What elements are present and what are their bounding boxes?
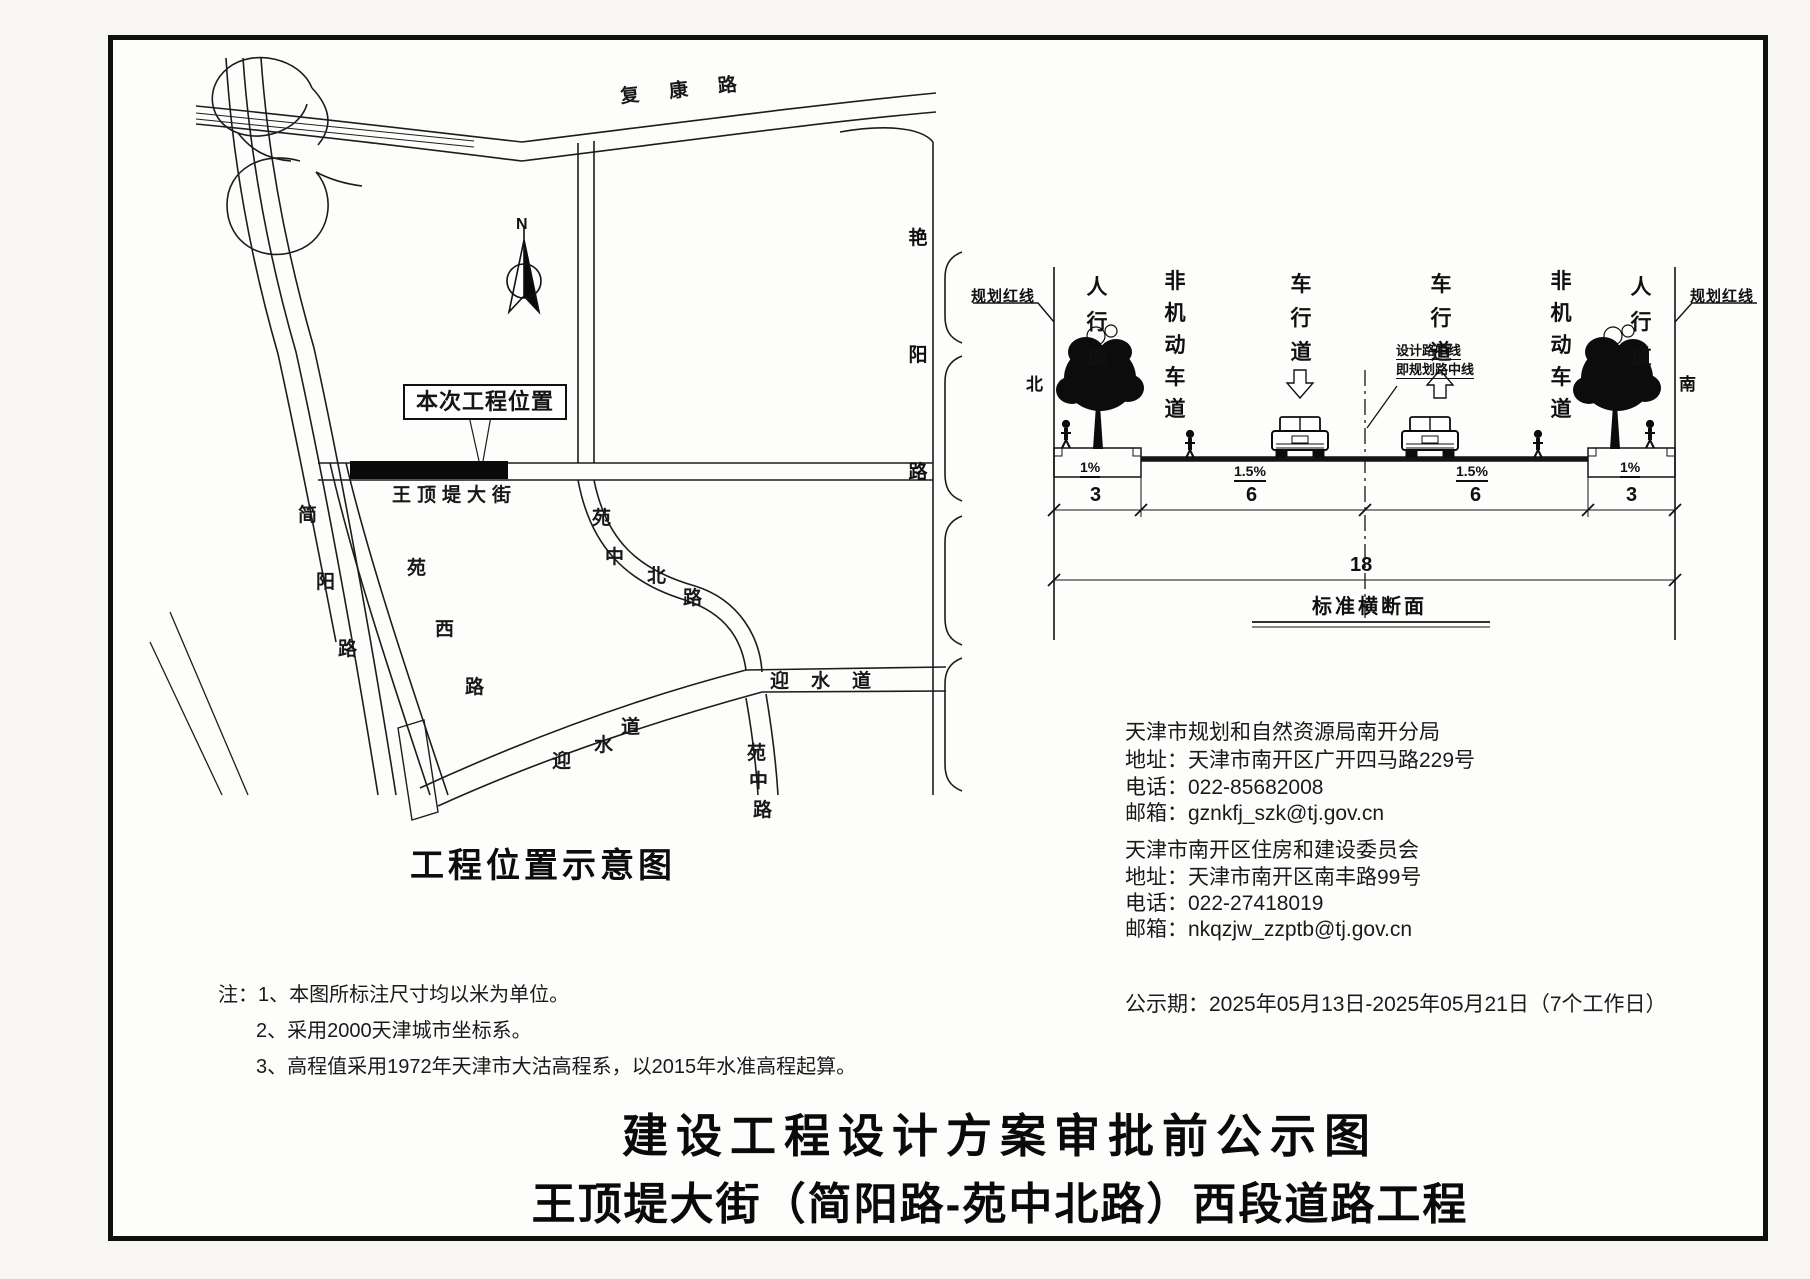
cross-section-title: 标准横断面 [1312,590,1427,619]
centerline-label-line1: 设计路中线 [1396,343,1461,360]
road-label-yuanxi: 苑 [407,559,426,578]
road-label-jianyang: 阳 [316,573,335,592]
note-3: 3、高程值采用1972年天津市大沽高程系，以2015年水准高程起算。 [256,1050,856,1079]
road-label-jianyang: 简 [298,506,317,525]
road-label-yingshui: 道 [621,718,640,737]
org1-address: 地址：天津市南开区广开四马路229号 [1125,744,1475,774]
note-2: 2、采用2000天津城市坐标系。 [256,1014,532,1043]
road-label-yingshui-east: 迎水道 [770,672,893,691]
lane-label-nonmotor-left: 非机动车道 [1162,266,1188,426]
lane-label-nonmotor-right: 非机动车道 [1548,266,1574,426]
project-location-label: 本次工程位置 [403,384,567,420]
pedestrian-icon [1533,430,1543,458]
direction-north: 北 [1026,370,1043,395]
red-line-label-left: 规划红线 [971,285,1035,306]
road-label-wangdingdi: 王顶堤大街 [392,486,517,505]
slope-left-lane: 1.5% [1234,463,1266,482]
pedestrian-icon [1061,420,1071,448]
location-map [150,58,962,820]
dim-left-lane: 6 [1246,484,1257,507]
pedestrian-icon [1645,420,1655,448]
road-label-yingshui: 迎 [552,752,571,771]
road-label-yuanzhong: 路 [753,801,772,820]
road-label-yuanzhong: 中 [749,772,768,791]
road-label-yanyang: 艳阳路 [905,180,931,531]
public-notice-sheet: { "map": { "north_mark": "N", "project_l… [0,0,1810,1279]
lane-label-sidewalk-left: 人行道 [1084,270,1110,375]
slope-left-sidewalk: 1% [1080,459,1100,478]
slope-right-sidewalk: 1% [1620,459,1640,478]
car-icon [1402,417,1458,457]
road-label-yuanzhong: 苑 [747,744,766,763]
lane-label-vehicle-left: 车行道 [1288,268,1314,370]
road-label-yuanzhongbei: 苑 [592,509,611,528]
main-title-line1: 建设工程设计方案审批前公示图 [230,1100,1770,1166]
road-label-yuanzhongbei: 路 [683,589,702,608]
org1-email: 邮箱：gznkfj_szk@tj.gov.cn [1125,797,1384,827]
road-label-yuanxi: 西 [435,620,454,639]
org1-name: 天津市规划和自然资源局南开分局 [1125,716,1440,746]
dim-right-sidewalk: 3 [1626,484,1637,507]
map-title: 工程位置示意图 [408,838,678,887]
centerline-label-line2: 即规划路中线 [1396,362,1474,379]
dim-left-sidewalk: 3 [1090,484,1101,507]
road-label-jianyang: 路 [338,640,357,659]
down-arrow-icon [1287,370,1313,398]
notice-period: 公示期：2025年05月13日-2025年05月21日（7个工作日） [1125,988,1667,1018]
north-arrow-icon [507,228,541,312]
car-icon [1272,417,1328,457]
project-location-bar [350,461,508,479]
lane-label-sidewalk-right: 人行道 [1628,270,1654,375]
road-label-yuanxi: 路 [465,678,484,697]
slope-right-lane: 1.5% [1456,463,1488,482]
org2-name: 天津市南开区住房和建设委员会 [1125,834,1419,864]
road-label-yuanzhongbei: 中 [605,548,624,567]
road-label-yuanzhongbei: 北 [647,567,666,586]
road-label-yingshui: 水 [594,736,613,755]
direction-south: 南 [1679,370,1696,395]
north-arrow-label: N [516,216,528,234]
org2-email: 邮箱：nkqzjw_zzptb@tj.gov.cn [1125,913,1412,943]
main-title-line2: 王顶堤大街（简阳路-苑中北路）西段道路工程 [230,1168,1770,1232]
pedestrian-icon [1185,430,1195,458]
red-line-label-right: 规划红线 [1690,285,1754,306]
dim-right-lane: 6 [1470,484,1481,507]
dim-total: 18 [1350,554,1372,577]
note-1: 注：1、本图所标注尺寸均以米为单位。 [218,978,569,1007]
